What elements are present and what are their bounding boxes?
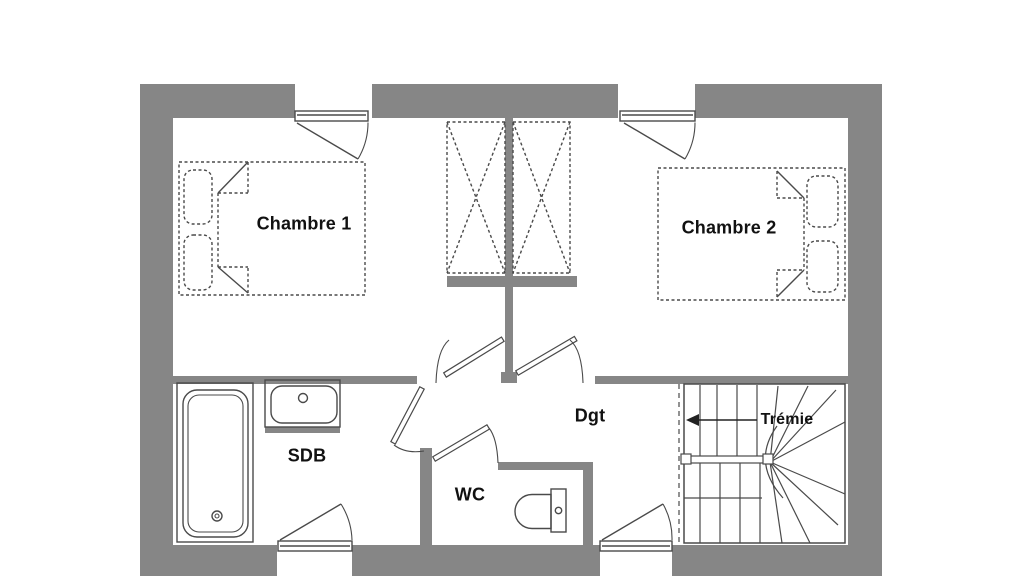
room-label-chambre2: Chambre 2 bbox=[682, 218, 777, 239]
winder-staircase-icon bbox=[679, 384, 845, 543]
room-label-wc: WC bbox=[455, 485, 485, 506]
room-label-sdb: SDB bbox=[288, 446, 327, 467]
door-chambre-1-icon bbox=[436, 337, 504, 383]
window-bottom-left-icon bbox=[278, 504, 352, 551]
room-label-tremie: Trémie bbox=[761, 411, 814, 429]
sink-icon bbox=[265, 380, 340, 427]
room-label-dgt: Dgt bbox=[575, 406, 606, 427]
door-sdb-icon bbox=[391, 387, 424, 452]
plan-linework bbox=[0, 0, 1024, 576]
window-top-right-icon bbox=[620, 111, 695, 159]
bathtub-icon bbox=[177, 383, 253, 542]
wardrobe-left-icon bbox=[447, 122, 505, 273]
stair-direction-arrow-icon bbox=[686, 414, 757, 426]
window-bottom-right-icon bbox=[600, 504, 672, 551]
door-chambre-2-icon bbox=[516, 336, 583, 383]
door-wc-icon bbox=[433, 425, 498, 463]
toilet-icon bbox=[515, 489, 566, 532]
wardrobe-right-icon bbox=[513, 122, 570, 273]
window-top-left-icon bbox=[295, 111, 368, 159]
floor-plan: Chambre 1 Chambre 2 SDB WC Dgt Trémie bbox=[0, 0, 1024, 576]
room-label-chambre1: Chambre 1 bbox=[257, 214, 352, 235]
